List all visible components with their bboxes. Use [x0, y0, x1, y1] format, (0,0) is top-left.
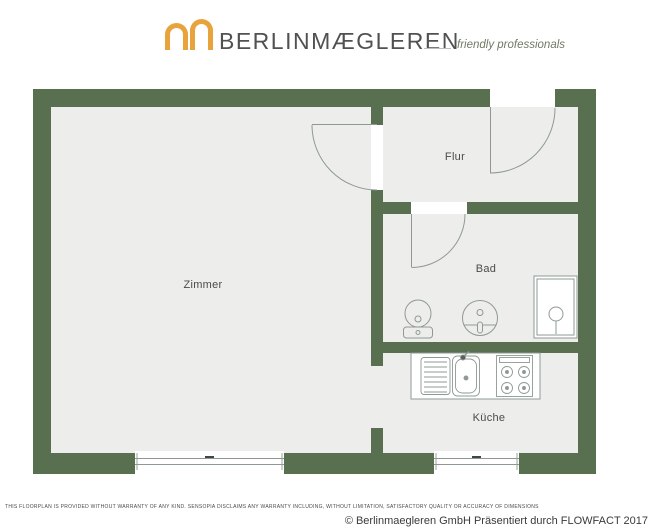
- logo-arch-left: [165, 23, 188, 50]
- disclaimer-text: THIS FLOORPLAN IS PROVIDED WITHOUT WARRA…: [5, 504, 539, 510]
- room-label-kueche: Küche: [459, 412, 519, 424]
- page: BERLINMÆGLEREN friendly professionals: [0, 0, 652, 531]
- double-arch-icon: [163, 17, 218, 53]
- brand-tagline: friendly professionals: [457, 39, 565, 51]
- logo-arch-right: [190, 19, 213, 50]
- room-label-zimmer: Zimmer: [163, 279, 243, 291]
- copyright-text: © Berlinmaegleren GmbH Präsentiert durch…: [345, 515, 648, 527]
- shower-icon: [534, 276, 577, 338]
- kitchen-counter: [411, 352, 540, 400]
- brand-separator: [424, 48, 451, 49]
- room-label-bad: Bad: [456, 263, 516, 275]
- brand-name: BERLINMÆGLEREN: [219, 30, 460, 53]
- floor: [51, 107, 578, 453]
- washbasin-icon: [463, 301, 498, 336]
- room-label-flur: Flur: [425, 151, 485, 163]
- toilet-icon: [404, 300, 433, 338]
